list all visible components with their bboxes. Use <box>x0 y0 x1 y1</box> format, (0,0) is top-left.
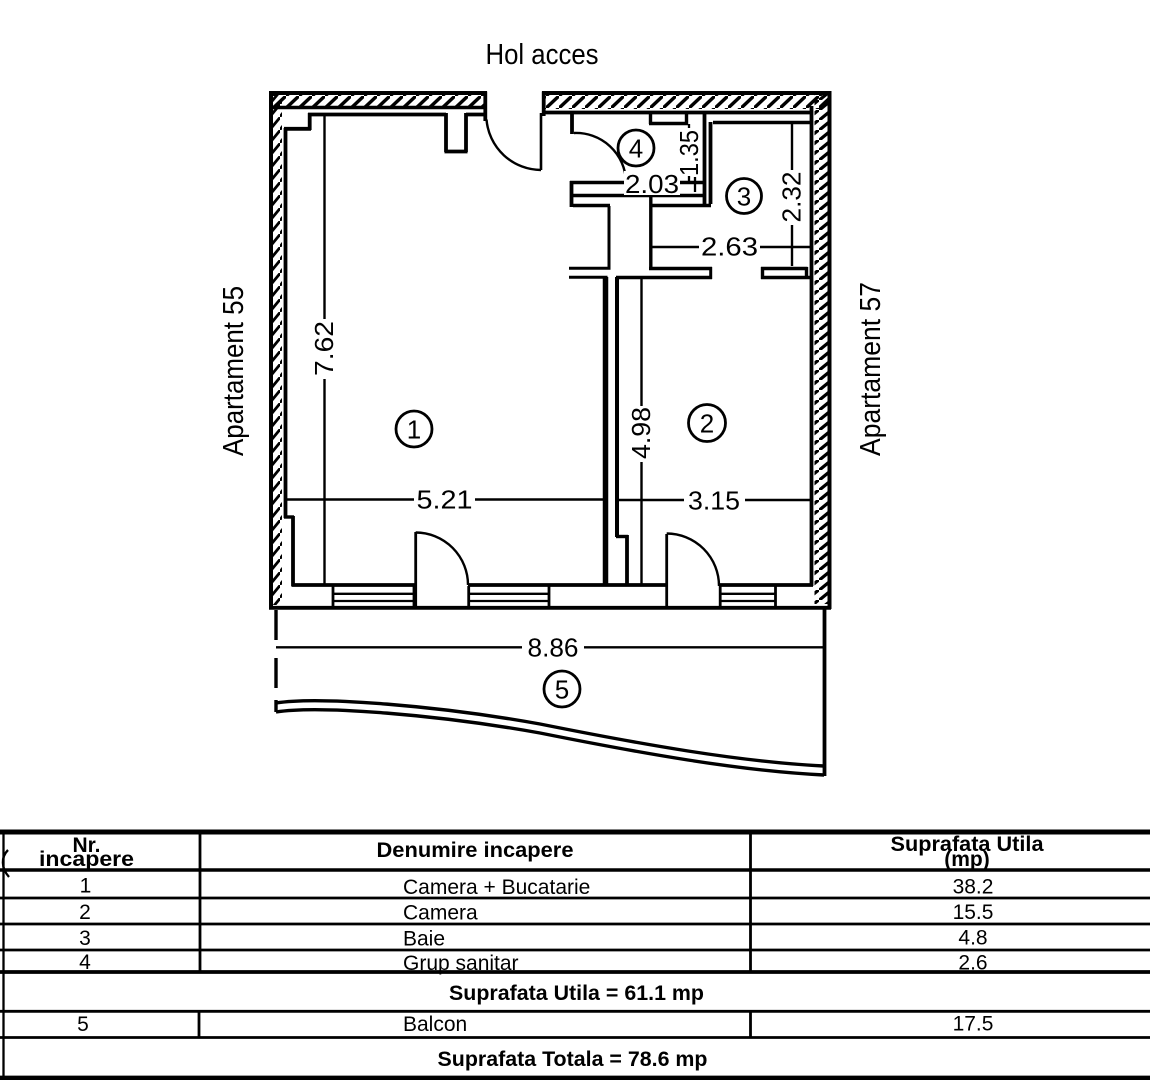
svg-text:1: 1 <box>407 415 421 445</box>
svg-text:2: 2 <box>700 409 714 439</box>
svg-text:Balcon: Balcon <box>403 1013 467 1036</box>
svg-text:4: 4 <box>629 134 643 164</box>
svg-text:Apartament 55: Apartament 55 <box>218 286 250 456</box>
svg-text:2.6: 2.6 <box>958 952 987 975</box>
svg-text:4.98: 4.98 <box>626 407 656 459</box>
svg-text:3: 3 <box>737 182 751 212</box>
svg-text:4.8: 4.8 <box>958 927 987 950</box>
svg-text:incapere: incapere <box>39 848 134 871</box>
svg-text:7.62: 7.62 <box>309 321 339 376</box>
svg-text:15.5: 15.5 <box>953 901 994 924</box>
svg-text:3: 3 <box>79 927 91 950</box>
svg-text:Hol acces: Hol acces <box>486 39 599 71</box>
svg-text:Apartament 57: Apartament 57 <box>855 282 887 456</box>
svg-text:Suprafata Utila = 61.1 mp: Suprafata Utila = 61.1 mp <box>449 982 704 1005</box>
svg-text:(mp): (mp) <box>944 848 990 871</box>
svg-text:1.35: 1.35 <box>674 130 704 176</box>
svg-text:2.32: 2.32 <box>777 172 807 223</box>
svg-text:5: 5 <box>77 1013 89 1036</box>
svg-text:2: 2 <box>79 901 91 924</box>
svg-text:1: 1 <box>80 875 92 898</box>
svg-text:Denumire incapere: Denumire incapere <box>377 839 574 862</box>
svg-text:Camera: Camera <box>403 902 478 925</box>
svg-text:Grup sanitar: Grup sanitar <box>403 952 519 975</box>
svg-text:5: 5 <box>555 675 569 705</box>
svg-text:Baie: Baie <box>403 928 445 951</box>
svg-text:17.5: 17.5 <box>953 1013 994 1036</box>
svg-text:Suprafata Totala = 78.6 mp: Suprafata Totala = 78.6 mp <box>438 1048 708 1071</box>
svg-text:2.03: 2.03 <box>625 169 679 199</box>
svg-text:8.86: 8.86 <box>528 633 579 663</box>
svg-text:38.2: 38.2 <box>953 876 994 899</box>
svg-text:3.15: 3.15 <box>688 486 740 516</box>
svg-text:Camera + Bucatarie: Camera + Bucatarie <box>403 876 590 899</box>
svg-text:5.21: 5.21 <box>417 485 473 515</box>
svg-text:4: 4 <box>79 951 91 974</box>
svg-text:2.63: 2.63 <box>701 232 758 262</box>
